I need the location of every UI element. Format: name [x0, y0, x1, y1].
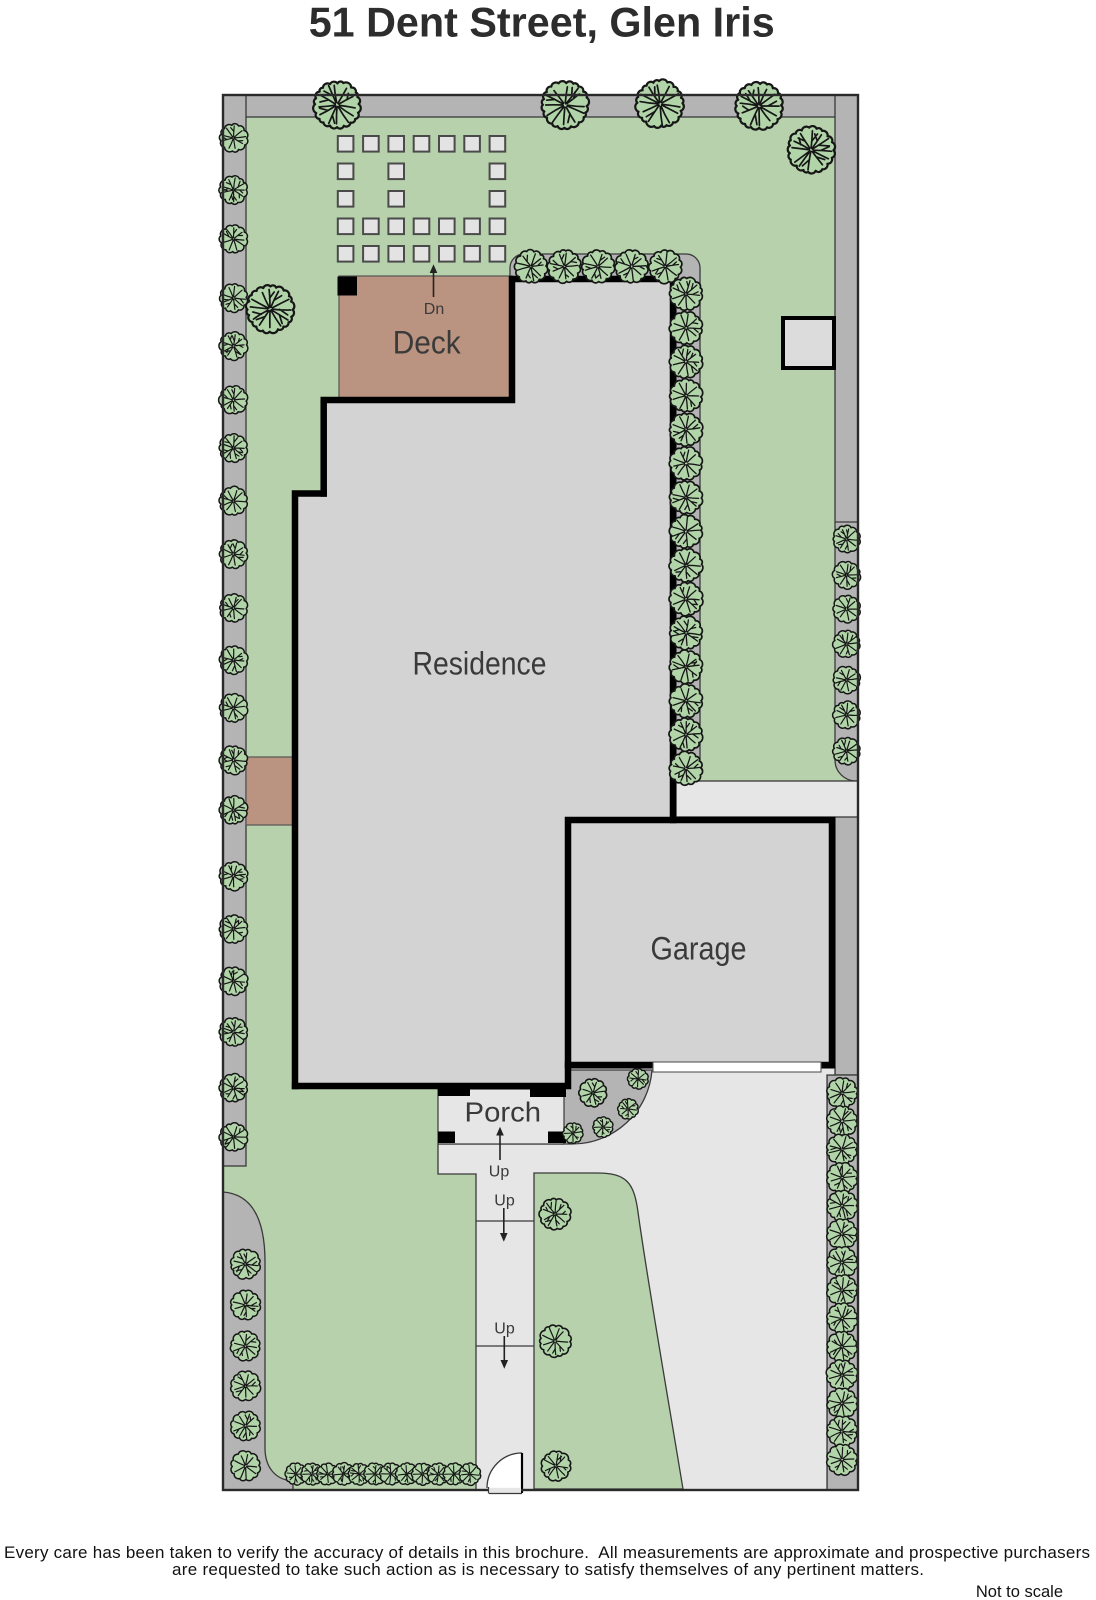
svg-text:Garage: Garage [651, 930, 747, 966]
svg-text:Dn: Dn [424, 301, 444, 318]
svg-text:Not to scale: Not to scale [976, 1583, 1063, 1600]
svg-text:Up: Up [494, 1193, 515, 1210]
svg-text:Up: Up [494, 1321, 515, 1338]
svg-text:Deck: Deck [393, 325, 462, 361]
svg-text:Residence: Residence [413, 645, 547, 681]
svg-text:Up: Up [489, 1164, 510, 1181]
svg-text:Porch: Porch [465, 1097, 542, 1128]
svg-text:51 Dent Street, Glen Iris: 51 Dent Street, Glen Iris [309, 0, 775, 46]
svg-text:are requested to take such act: are requested to take such action as is … [172, 1560, 924, 1579]
